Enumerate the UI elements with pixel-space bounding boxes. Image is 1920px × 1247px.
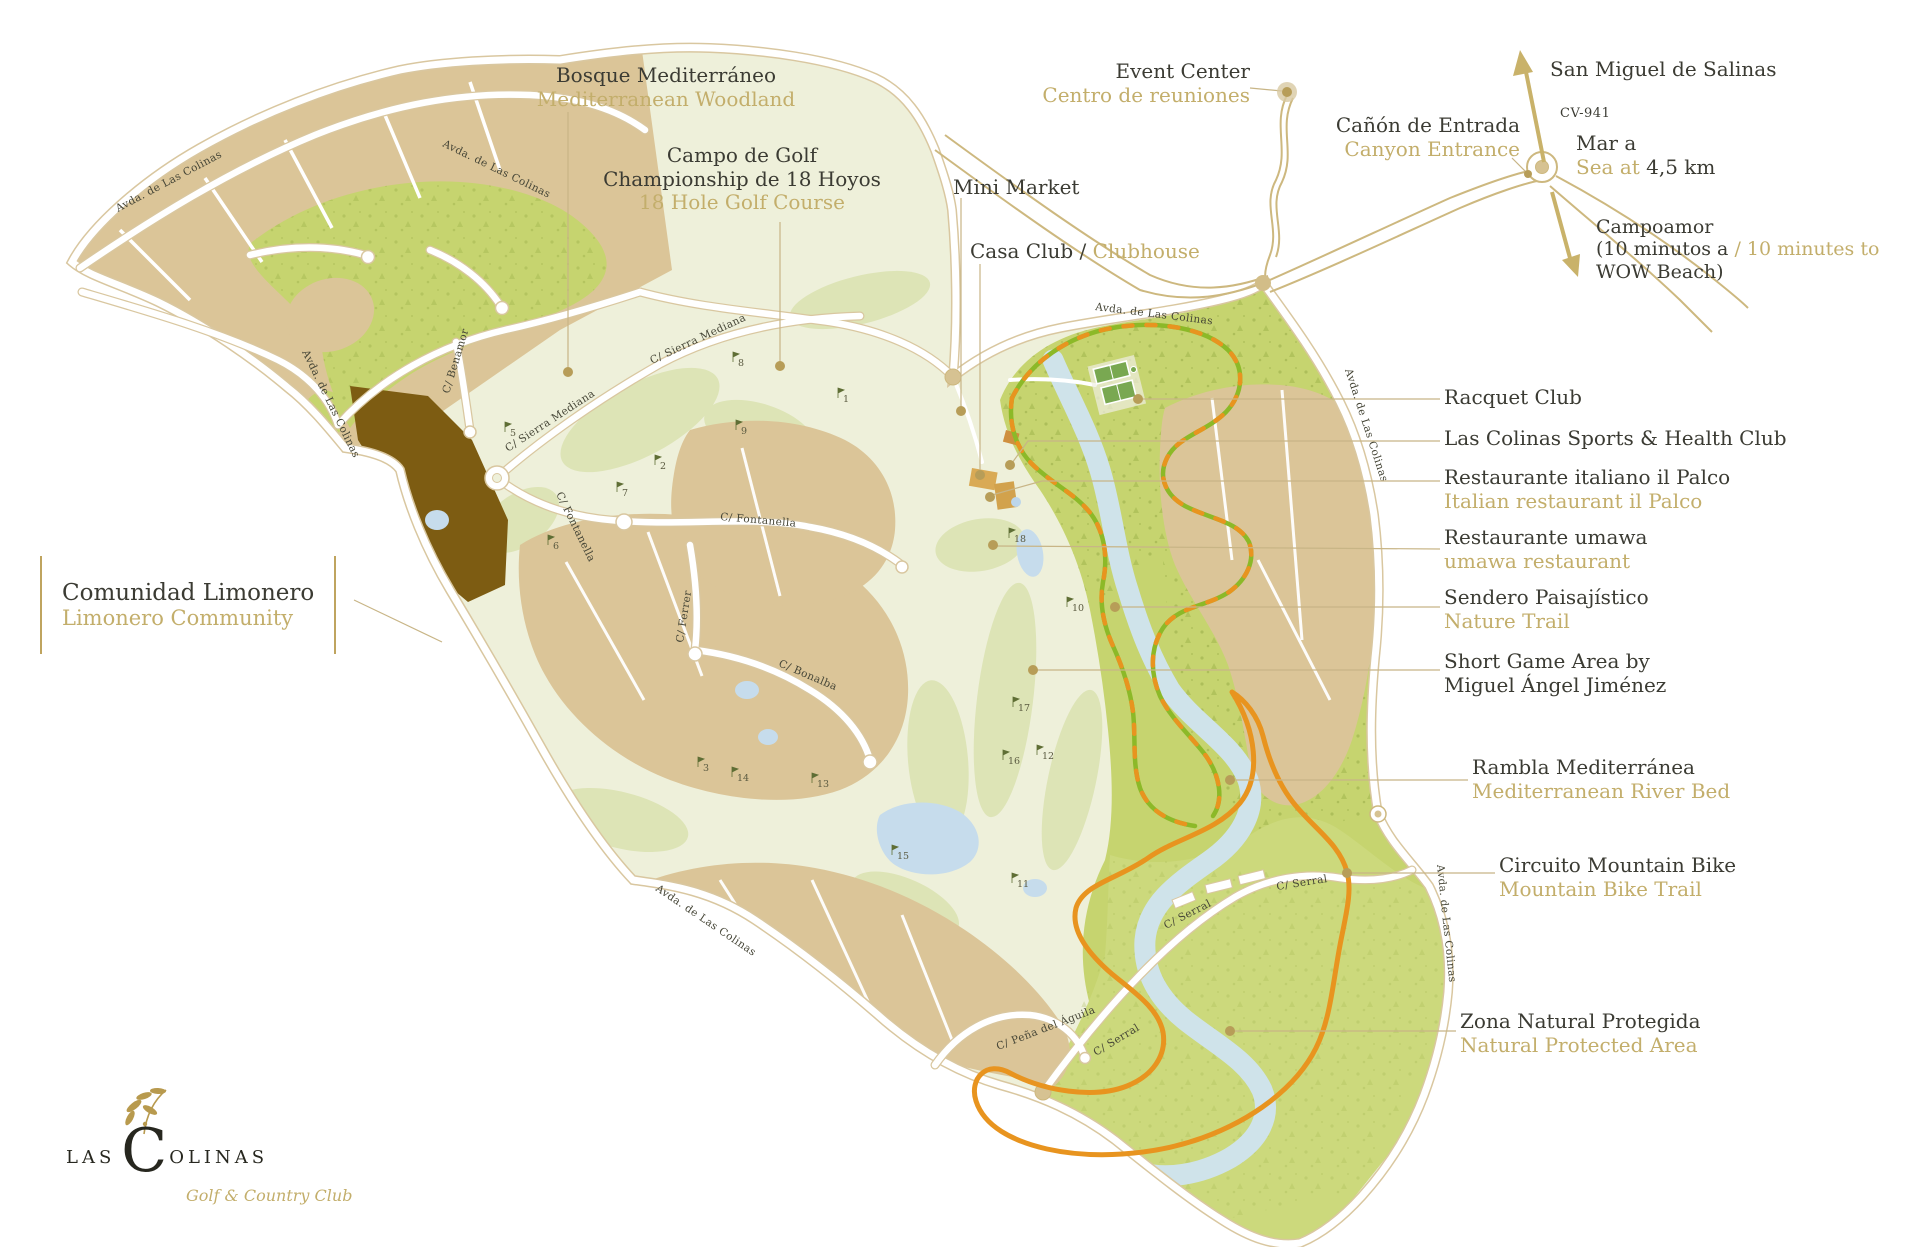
label-subtitle: Mediterranean River Bed	[1472, 780, 1730, 804]
svg-text:15: 15	[897, 851, 909, 862]
label-rambla-mediterranea: Rambla Mediterránea Mediterranean River …	[1472, 756, 1730, 803]
label-canyon-entrance: Cañón de Entrada Canyon Entrance	[1336, 114, 1520, 161]
label-cv941: CV-941	[1560, 106, 1610, 121]
logo-wordmark: LAS C OLINAS	[66, 1128, 268, 1175]
label-subtitle: Mountain Bike Trail	[1499, 878, 1736, 902]
svg-text:3: 3	[703, 763, 709, 774]
label-title: Mar a	[1576, 132, 1715, 156]
label-event-center: Event Center Centro de reuniones	[1042, 60, 1250, 107]
label-title-2: Miguel Ángel Jiménez	[1444, 674, 1666, 698]
las-colinas-logo: LAS C OLINAS Golf & Country Club	[66, 1086, 366, 1216]
label-title: Zona Natural Protegida	[1460, 1010, 1701, 1034]
event-center-marker	[1282, 87, 1292, 97]
svg-text:17: 17	[1018, 703, 1030, 714]
label-title: Circuito Mountain Bike	[1499, 854, 1736, 878]
svg-text:16: 16	[1008, 756, 1020, 767]
label-line2-gold: / 10 minutes to	[1734, 238, 1879, 260]
label-subtitle: Centro de reuniones	[1042, 84, 1250, 108]
label-title: Las Colinas Sports & Health Club	[1444, 427, 1787, 451]
label-comunidad-limonero: Comunidad Limonero Limonero Community	[40, 556, 336, 654]
label-subtitle: Canyon Entrance	[1336, 138, 1520, 162]
logo-word-las: LAS	[66, 1147, 115, 1168]
label-san-miguel: San Miguel de Salinas	[1550, 58, 1777, 82]
label-subtitle: 18 Hole Golf Course	[603, 191, 881, 215]
svg-text:7: 7	[622, 488, 628, 499]
label-title: San Miguel de Salinas	[1550, 58, 1777, 82]
label-subtitle: Mediterranean Woodland	[537, 88, 795, 112]
entrance-roundabout	[1255, 152, 1557, 291]
svg-text:14: 14	[737, 773, 749, 784]
logo-word-olinas: OLINAS	[169, 1147, 268, 1168]
svg-text:5: 5	[510, 428, 516, 439]
svg-text:13: 13	[817, 779, 829, 790]
resort-map-page: Avda. de Las Colinas Avda. de Las Colina…	[0, 0, 1920, 1247]
label-subtitle: umawa restaurant	[1444, 550, 1647, 574]
svg-text:8: 8	[738, 358, 744, 369]
label-sendero-paisajistico: Sendero Paisajístico Nature Trail	[1444, 586, 1649, 633]
label-title: Mini Market	[953, 176, 1079, 200]
label-racquet-club: Racquet Club	[1444, 386, 1582, 410]
label-zona-natural-protegida: Zona Natural Protegida Natural Protected…	[1460, 1010, 1701, 1057]
label-title: Bosque Mediterráneo	[537, 64, 795, 88]
label-line2: (10 minutos a	[1596, 238, 1734, 260]
svg-text:9: 9	[741, 426, 747, 437]
svg-text:11: 11	[1017, 879, 1029, 890]
label-subtitle: Italian restaurant il Palco	[1444, 490, 1730, 514]
label-restaurante-il-palco: Restaurante italiano il Palco Italian re…	[1444, 466, 1730, 513]
svg-text:10: 10	[1072, 603, 1084, 614]
svg-text:12: 12	[1042, 751, 1054, 762]
label-sea-distance: Mar a Sea at 4,5 km	[1576, 132, 1715, 179]
label-title-2: Championship de 18 Hoyos	[603, 168, 881, 192]
svg-text:2: 2	[660, 461, 666, 472]
logo-big-c: C	[121, 1128, 167, 1175]
label-casa-club: Casa Club / Clubhouse	[970, 240, 1200, 264]
svg-text:18: 18	[1014, 534, 1026, 545]
label-title: Restaurante italiano il Palco	[1444, 466, 1730, 490]
label-title: Sendero Paisajístico	[1444, 586, 1649, 610]
label-title: Casa Club /	[970, 239, 1093, 263]
arrow-south-icon	[1562, 254, 1580, 277]
label-distance: 4,5 km	[1640, 155, 1716, 179]
label-subtitle: Limonero Community	[62, 606, 314, 630]
label-title: Campoamor	[1596, 216, 1879, 238]
label-campo-de-golf: Campo de Golf Championship de 18 Hoyos 1…	[603, 144, 881, 215]
label-subtitle: Sea at	[1576, 155, 1640, 179]
label-title: Short Game Area by	[1444, 650, 1666, 674]
label-mini-market: Mini Market	[953, 176, 1079, 200]
label-line3: WOW Beach)	[1596, 261, 1879, 283]
logo-tagline: Golf & Country Club	[186, 1186, 352, 1205]
label-sports-health-club: Las Colinas Sports & Health Club	[1444, 427, 1787, 451]
label-bosque-mediterraneo: Bosque Mediterráneo Mediterranean Woodla…	[537, 64, 795, 111]
label-title: Racquet Club	[1444, 386, 1582, 410]
label-title: Rambla Mediterránea	[1472, 756, 1730, 780]
label-title: Campo de Golf	[603, 144, 881, 168]
label-restaurante-umawa: Restaurante umawa umawa restaurant	[1444, 526, 1647, 573]
label-title: Event Center	[1042, 60, 1250, 84]
svg-text:1: 1	[843, 394, 849, 405]
label-title: CV-941	[1560, 106, 1610, 121]
label-campoamor: Campoamor (10 minutos a / 10 minutes to …	[1596, 216, 1879, 283]
arrow-north-icon	[1513, 50, 1533, 76]
label-circuito-mountain-bike: Circuito Mountain Bike Mountain Bike Tra…	[1499, 854, 1736, 901]
svg-text:6: 6	[553, 541, 559, 552]
label-subtitle: Nature Trail	[1444, 610, 1649, 634]
label-title: Restaurante umawa	[1444, 526, 1647, 550]
label-short-game-area: Short Game Area by Miguel Ángel Jiménez	[1444, 650, 1666, 697]
label-subtitle: Natural Protected Area	[1460, 1034, 1701, 1058]
label-title: Cañón de Entrada	[1336, 114, 1520, 138]
label-title: Comunidad Limonero	[62, 580, 314, 606]
label-subtitle: Clubhouse	[1093, 239, 1200, 263]
